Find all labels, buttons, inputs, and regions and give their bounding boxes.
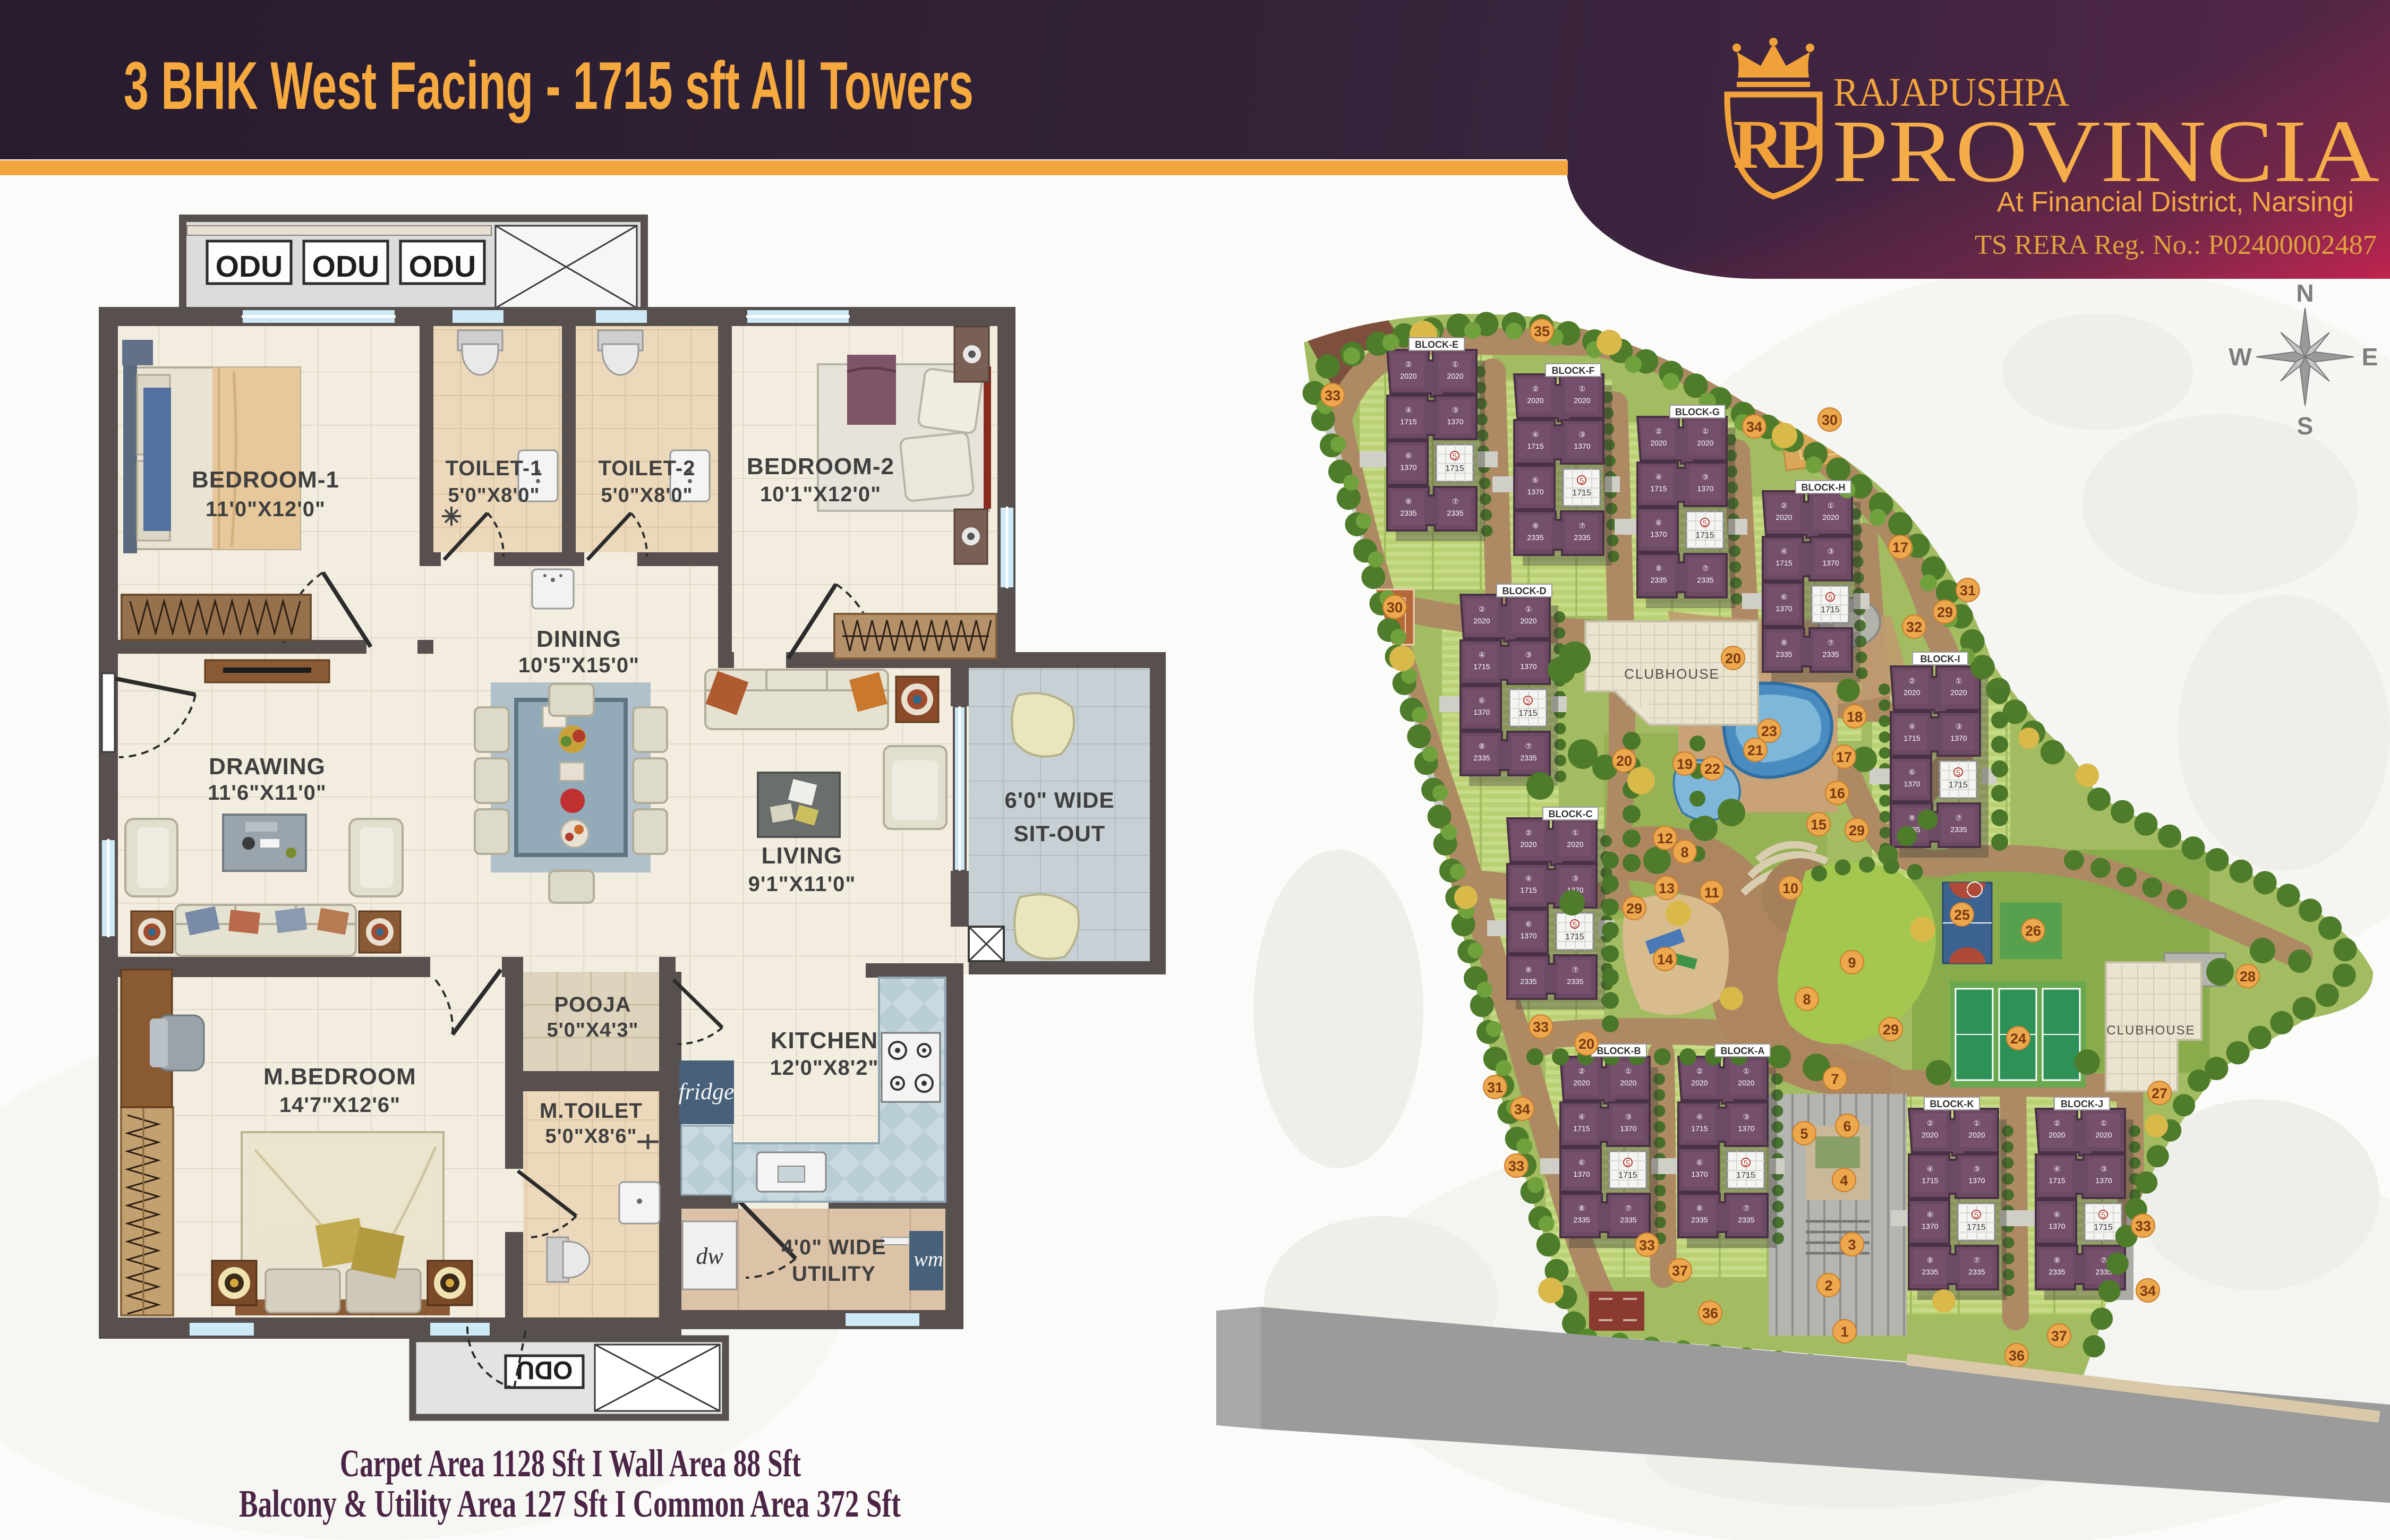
svg-text:11'0"X12'0": 11'0"X12'0": [206, 498, 326, 521]
svg-text:ODU: ODU: [312, 250, 380, 284]
svg-text:36: 36: [1702, 1305, 1718, 1321]
svg-text:BLOCK-F: BLOCK-F: [1552, 365, 1595, 376]
svg-text:21: 21: [1747, 742, 1763, 758]
svg-text:27: 27: [2152, 1085, 2167, 1101]
svg-text:34: 34: [1514, 1101, 1530, 1117]
svg-text:RP: RP: [1733, 105, 1819, 183]
svg-text:Carpet Area 1128 Sft I Wall Ar: Carpet Area 1128 Sft I Wall Area 88 Sft: [340, 1442, 801, 1485]
svg-text:BLOCK-B: BLOCK-B: [1597, 1046, 1641, 1056]
svg-text:30: 30: [1387, 600, 1403, 615]
svg-text:Balcony & Utility Area 127 Sft: Balcony & Utility Area 127 Sft I Common …: [239, 1482, 901, 1525]
svg-text:5'0"X8'0": 5'0"X8'0": [448, 484, 540, 507]
svg-text:30: 30: [1822, 412, 1838, 428]
svg-text:10'1"X12'0": 10'1"X12'0": [760, 483, 881, 506]
svg-text:2: 2: [1824, 1278, 1832, 1294]
svg-text:ODU: ODU: [409, 250, 476, 284]
svg-text:BLOCK-D: BLOCK-D: [1503, 586, 1547, 596]
svg-text:34: 34: [2140, 1283, 2156, 1299]
svg-text:UTILITY: UTILITY: [792, 1262, 876, 1286]
svg-text:W: W: [2229, 343, 2252, 371]
svg-text:CLUBHOUSE: CLUBHOUSE: [1624, 666, 1720, 682]
svg-text:20: 20: [1578, 1036, 1594, 1052]
svg-text:17: 17: [1892, 540, 1908, 555]
svg-text:14: 14: [1657, 952, 1673, 968]
svg-text:POOJA: POOJA: [554, 993, 631, 1016]
svg-text:9'1"X11'0": 9'1"X11'0": [748, 872, 856, 896]
svg-text:5'0"X4'3": 5'0"X4'3": [547, 1019, 639, 1041]
svg-text:17: 17: [1836, 749, 1852, 765]
svg-text:SIT-OUT: SIT-OUT: [1014, 821, 1106, 846]
svg-text:31: 31: [1960, 583, 1976, 598]
svg-text:4'0" WIDE: 4'0" WIDE: [781, 1236, 886, 1259]
svg-text:15: 15: [1811, 817, 1826, 833]
svg-text:18: 18: [1847, 709, 1863, 725]
svg-text:19: 19: [1677, 756, 1693, 772]
svg-text:34: 34: [1746, 419, 1762, 435]
svg-text:3: 3: [1848, 1237, 1856, 1253]
svg-text:9: 9: [1848, 955, 1856, 971]
svg-text:16: 16: [1829, 785, 1845, 801]
svg-text:33: 33: [1639, 1237, 1655, 1253]
svg-text:ODU: ODU: [516, 1356, 573, 1384]
svg-text:fridge: fridge: [678, 1079, 734, 1105]
svg-text:BLOCK-A: BLOCK-A: [1721, 1046, 1765, 1056]
svg-text:20: 20: [1725, 651, 1741, 666]
svg-text:BLOCK-C: BLOCK-C: [1549, 809, 1593, 819]
svg-text:dw: dw: [696, 1243, 723, 1269]
svg-text:29: 29: [1937, 604, 1953, 620]
svg-text:33: 33: [1533, 1019, 1549, 1035]
svg-text:29: 29: [1883, 1022, 1899, 1038]
svg-text:BLOCK-J: BLOCK-J: [2061, 1099, 2103, 1109]
svg-text:10: 10: [1782, 880, 1798, 896]
svg-text:35: 35: [1534, 323, 1550, 339]
svg-text:CLUBHOUSE: CLUBHOUSE: [2106, 1023, 2195, 1038]
svg-text:12'0"X8'2": 12'0"X8'2": [770, 1056, 879, 1080]
svg-text:TOILET-1: TOILET-1: [446, 457, 543, 480]
svg-text:6'0" WIDE: 6'0" WIDE: [1005, 788, 1115, 812]
svg-text:TS RERA Reg. No.: P02400002487: TS RERA Reg. No.: P02400002487: [1975, 230, 2377, 260]
svg-text:22: 22: [1704, 761, 1720, 777]
svg-text:DINING: DINING: [536, 626, 621, 652]
svg-text:BLOCK-E: BLOCK-E: [1415, 339, 1458, 350]
svg-text:S: S: [2297, 412, 2314, 440]
svg-text:KITCHEN: KITCHEN: [771, 1028, 878, 1054]
svg-text:11'6"X11'0": 11'6"X11'0": [208, 781, 327, 805]
svg-text:28: 28: [2240, 969, 2256, 985]
svg-text:1: 1: [1840, 1324, 1848, 1340]
svg-text:ODU: ODU: [216, 250, 283, 284]
svg-text:5'0"X8'6": 5'0"X8'6": [545, 1125, 637, 1148]
svg-text:24: 24: [2010, 1031, 2026, 1047]
svg-text:26: 26: [2025, 923, 2041, 939]
svg-text:12: 12: [1657, 831, 1673, 846]
svg-text:5'0"X8'0": 5'0"X8'0": [601, 484, 693, 507]
svg-text:37: 37: [1672, 1263, 1688, 1279]
svg-text:BEDROOM-1: BEDROOM-1: [192, 467, 339, 493]
svg-text:29: 29: [1849, 823, 1865, 839]
svg-text:BLOCK-I: BLOCK-I: [1920, 654, 1960, 664]
svg-text:3 BHK West Facing - 1715 sft A: 3 BHK West Facing - 1715 sft All Towers: [124, 48, 974, 123]
svg-text:8: 8: [1680, 844, 1688, 860]
svg-text:LIVING: LIVING: [762, 843, 843, 869]
svg-text:7: 7: [1831, 1071, 1839, 1087]
svg-text:33: 33: [1508, 1158, 1524, 1174]
svg-text:BEDROOM-2: BEDROOM-2: [747, 454, 894, 480]
svg-text:TOILET-2: TOILET-2: [599, 457, 696, 480]
svg-text:5: 5: [1800, 1126, 1808, 1142]
svg-text:M.BEDROOM: M.BEDROOM: [263, 1064, 416, 1090]
svg-text:8: 8: [1803, 991, 1811, 1007]
svg-text:33: 33: [1325, 388, 1341, 404]
svg-text:11: 11: [1704, 885, 1720, 901]
svg-text:31: 31: [1487, 1080, 1503, 1096]
svg-text:BLOCK-K: BLOCK-K: [1930, 1099, 1974, 1109]
svg-text:20: 20: [1616, 753, 1632, 769]
svg-text:N: N: [2296, 279, 2314, 307]
svg-text:23: 23: [1761, 723, 1777, 739]
svg-text:6: 6: [1843, 1118, 1851, 1134]
svg-text:wm: wm: [914, 1247, 943, 1271]
svg-text:BLOCK-H: BLOCK-H: [1802, 482, 1846, 493]
svg-text:14'7"X12'6": 14'7"X12'6": [279, 1093, 400, 1117]
svg-text:4: 4: [1840, 1173, 1848, 1188]
svg-text:25: 25: [1954, 907, 1970, 923]
svg-text:At Financial District, Narsing: At Financial District, Narsingi: [1997, 186, 2354, 218]
svg-text:E: E: [2362, 343, 2378, 371]
svg-text:M.TOILET: M.TOILET: [540, 1099, 643, 1123]
svg-text:10'5"X15'0": 10'5"X15'0": [518, 654, 639, 677]
svg-text:33: 33: [2135, 1218, 2151, 1234]
svg-text:37: 37: [2051, 1328, 2067, 1344]
svg-text:32: 32: [1906, 619, 1922, 635]
svg-text:BLOCK-G: BLOCK-G: [1675, 407, 1720, 417]
svg-text:13: 13: [1659, 880, 1675, 896]
svg-text:36: 36: [2009, 1348, 2025, 1364]
svg-text:DRAWING: DRAWING: [209, 754, 326, 780]
svg-text:29: 29: [1626, 901, 1642, 917]
